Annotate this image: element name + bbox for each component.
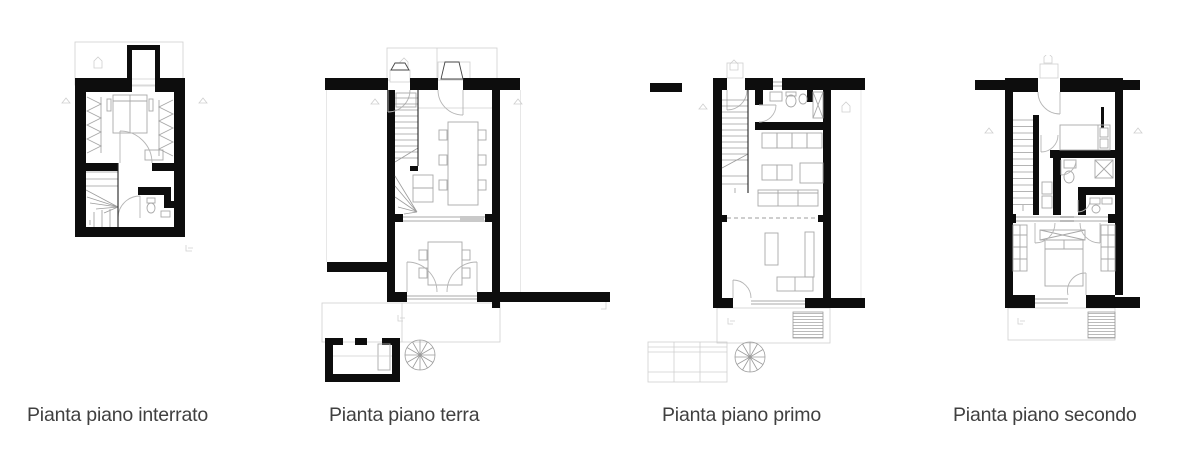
walls <box>325 78 610 382</box>
spiral-stair-icon <box>735 342 765 372</box>
section-marker-icon <box>842 102 850 112</box>
plan-caption-primo: Pianta piano primo <box>662 404 821 427</box>
section-marker-icon <box>728 318 735 324</box>
stair-wall <box>1033 115 1039 215</box>
desk <box>765 233 778 265</box>
plan-caption-interrato: Pianta piano interrato <box>27 404 208 427</box>
chaise <box>805 232 814 277</box>
floor-plan-primo-drawing <box>630 55 870 395</box>
plan-primo <box>630 55 870 395</box>
sofa <box>758 190 818 206</box>
section-marker-icon <box>985 128 993 133</box>
kitchen-island <box>800 163 823 183</box>
bed <box>1060 125 1110 150</box>
grating-hatch <box>793 312 823 338</box>
plan-caption-secondo: Pianta piano secondo <box>953 404 1137 427</box>
section-marker-icon <box>1018 318 1025 324</box>
doors <box>727 90 776 298</box>
section-marker-icon <box>186 245 193 251</box>
grating-hatch <box>1088 312 1115 338</box>
plan-interrato <box>55 30 250 260</box>
furniture <box>333 93 492 370</box>
sink-fixture <box>770 92 782 101</box>
kitchen-counter <box>762 133 777 148</box>
wardrobe-zigzag <box>87 97 101 153</box>
direction-arrow-icon <box>1044 55 1052 63</box>
walls <box>650 78 865 308</box>
table <box>428 242 462 285</box>
plan-terra <box>300 40 625 400</box>
window-glazing <box>773 82 782 86</box>
stairs <box>1013 120 1033 211</box>
sink-fixture <box>161 211 170 217</box>
stairs <box>722 90 748 193</box>
window-glazing <box>1035 299 1068 303</box>
bathroom-wall <box>755 122 823 130</box>
floor-plan-secondo-drawing <box>945 55 1165 350</box>
window-glazing <box>751 301 805 304</box>
section-marker-icon <box>1134 128 1142 133</box>
wardrobe-zigzag <box>159 100 173 156</box>
spiral-stair-icon <box>405 340 435 370</box>
section-marker-icon <box>398 315 405 321</box>
direction-arrow-icon <box>94 57 102 68</box>
doors <box>118 131 152 218</box>
stairs <box>86 163 118 227</box>
section-marker-icon <box>699 104 707 109</box>
toilet-fixture <box>147 203 155 213</box>
shed-roof <box>648 342 727 382</box>
terrace-outline <box>322 303 500 342</box>
section-marker-icon <box>62 98 70 103</box>
walls <box>975 78 1140 308</box>
bidet-fixture <box>799 94 807 104</box>
section-marker-icon <box>601 302 606 309</box>
furniture <box>751 82 823 304</box>
floor-plan-interrato-drawing <box>55 30 250 260</box>
section-marker-icon <box>199 98 207 103</box>
floor-plans-sheet: Pianta piano interrato Pianta piano terr… <box>0 0 1200 457</box>
toilet-fixture <box>786 95 796 107</box>
section-marker-icon <box>371 99 379 104</box>
french-door <box>407 262 437 292</box>
plan-secondo <box>945 55 1165 350</box>
stairs <box>395 90 418 214</box>
plan-caption-terra: Pianta piano terra <box>329 404 479 427</box>
floor-plan-terra-drawing <box>300 40 625 400</box>
dining-table <box>448 122 478 205</box>
glass-partition <box>1016 217 1108 221</box>
